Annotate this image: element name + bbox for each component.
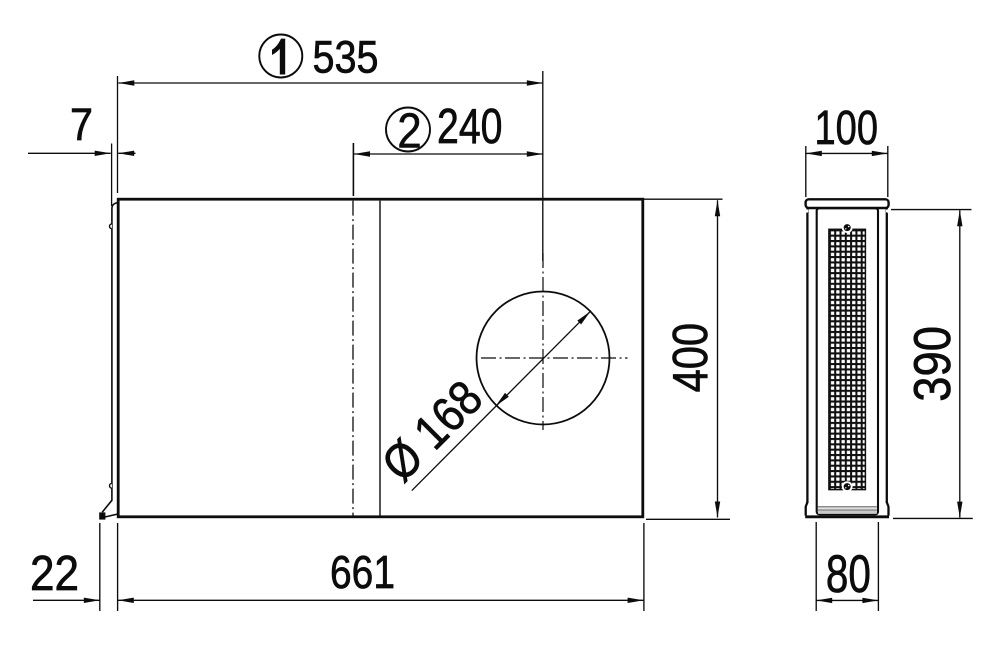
svg-text:400: 400 [664,323,718,393]
svg-text:661: 661 [330,546,395,598]
svg-text:2: 2 [397,105,422,159]
svg-text:7: 7 [70,99,93,150]
svg-text:100: 100 [815,102,879,155]
svg-text:535: 535 [313,32,379,83]
svg-text:390: 390 [903,326,961,402]
svg-text:22: 22 [30,546,79,601]
svg-text:240: 240 [437,100,503,154]
svg-text:80: 80 [826,546,871,604]
